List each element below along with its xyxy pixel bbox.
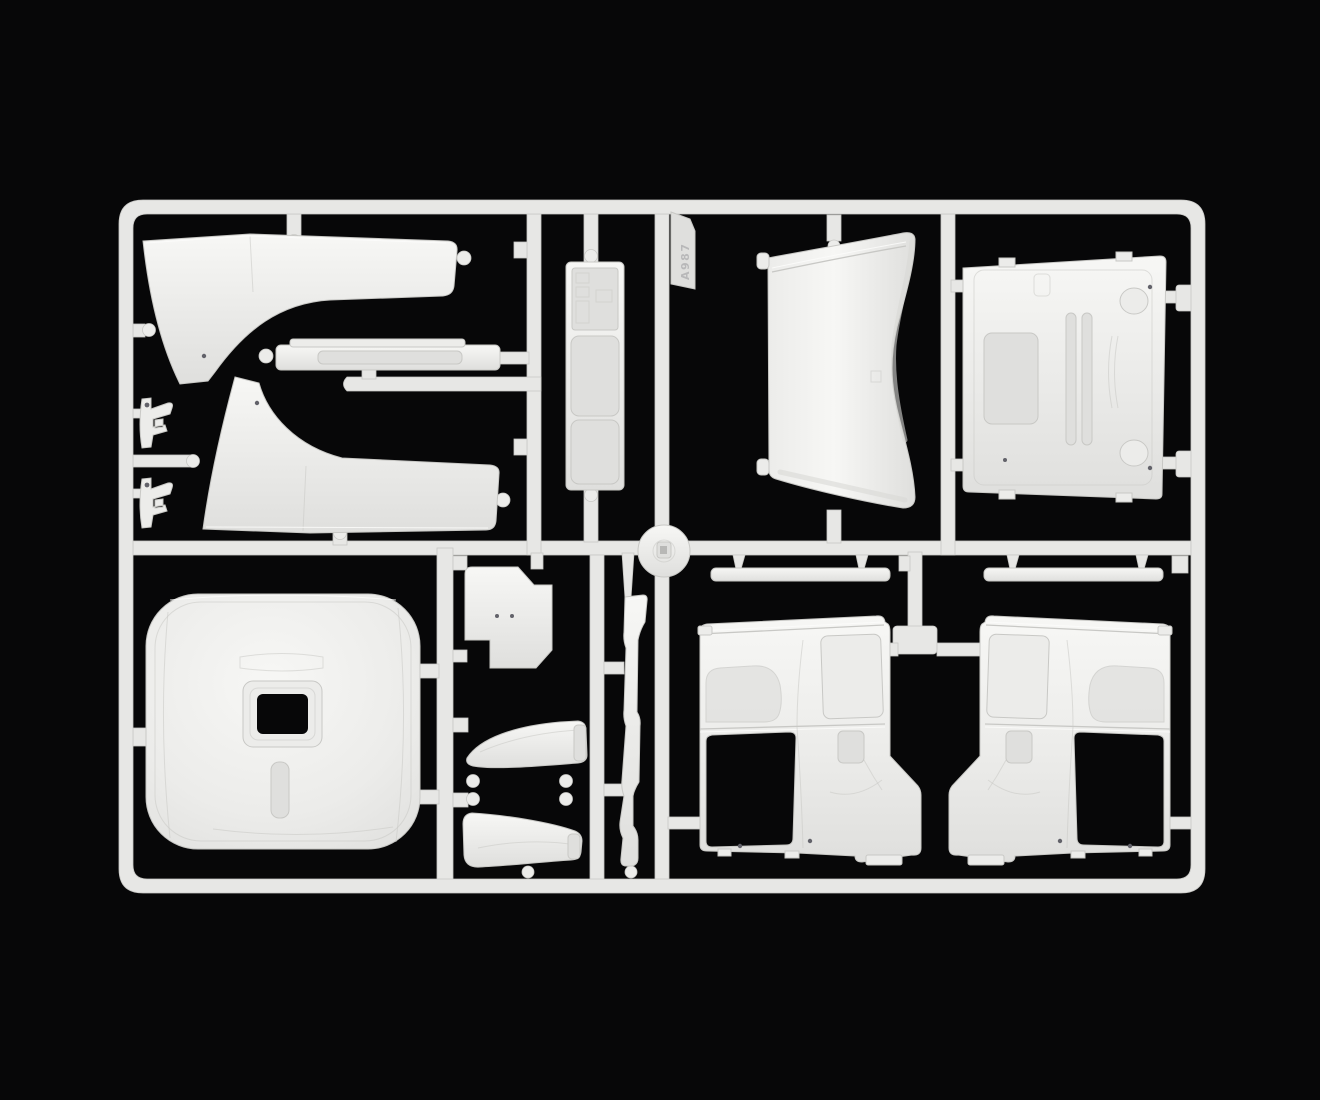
interior-panel	[566, 262, 624, 490]
runner-vertical-A	[437, 548, 453, 880]
tab-runner5-top	[899, 556, 910, 571]
bracket-hole	[145, 403, 150, 408]
gate-ball-scoop-3	[560, 775, 573, 788]
door-connector-arm-right	[937, 643, 982, 656]
backpanel-tab-4	[1116, 493, 1132, 502]
door-recess-rect	[821, 634, 884, 719]
sprue-photo: A987	[0, 0, 1320, 1100]
sunroof-opening	[257, 694, 308, 734]
backpanel-dome-2	[1120, 440, 1148, 466]
backpanel-dot-2	[1148, 466, 1152, 470]
backpanel-dome-1	[1120, 288, 1148, 314]
door-connector-block	[893, 626, 937, 654]
stub-left-mid	[133, 455, 190, 467]
sprue-tag: A987	[671, 212, 695, 289]
gate-ball-left-mid	[187, 455, 200, 468]
gate-ball-fender-arm	[457, 251, 471, 265]
tab-runnerA-top	[453, 556, 467, 570]
deflector-tab-bottom	[757, 459, 769, 475]
deflector-tab-top	[757, 253, 769, 269]
gate-ball-scoop-2	[467, 793, 480, 806]
backpanel-window-recess	[984, 333, 1038, 424]
fender-upper-pinmark	[202, 354, 206, 358]
backpanel-tab-2	[1116, 252, 1132, 261]
stub-door-left	[668, 817, 702, 829]
cab-back-panel	[963, 252, 1166, 502]
gate-ball-scoop-1	[467, 775, 480, 788]
backpanel-dot-3	[1003, 458, 1007, 462]
visor-recess	[318, 351, 462, 364]
door-dot-1	[808, 839, 812, 843]
gate-roof-deflector-bottom	[827, 510, 841, 543]
door-soft-recess	[706, 666, 781, 722]
hub-disc	[638, 525, 690, 577]
runner-vertical-2b	[590, 555, 604, 880]
gate-ball-scoop-bottom	[522, 866, 534, 878]
backpanel-tab-1	[999, 258, 1015, 267]
sprue-tag-text: A987	[679, 243, 692, 280]
interior-top-block	[572, 268, 618, 330]
gate-ball-sidetrim	[625, 866, 637, 878]
backpanel-rib-1	[1066, 313, 1076, 445]
tab-runnerA-2	[453, 793, 468, 807]
scoop-upper-endface	[574, 725, 586, 761]
backpanel-tab-3	[999, 490, 1015, 499]
gate-floorplate-left	[453, 650, 467, 662]
gate-ball-visor	[259, 349, 273, 363]
door-small-recess	[838, 731, 864, 763]
door-dot-2	[738, 844, 742, 848]
door-sill-tab-2	[785, 851, 799, 858]
interior-recess-2	[571, 420, 619, 484]
runner-vertical-4	[941, 214, 955, 555]
cab-roof-panel	[146, 594, 420, 849]
tab-runner1-top	[514, 242, 527, 258]
gate-ball-scoop-4	[560, 793, 573, 806]
backpanel-rib-2	[1082, 313, 1092, 445]
hub-slot	[660, 546, 667, 554]
door-sill-tab-1	[718, 849, 731, 856]
door-rail-cap	[698, 626, 712, 635]
tab-runnerA-1	[453, 718, 468, 732]
door-foot	[866, 855, 902, 865]
gate-floorplate-top	[531, 553, 543, 569]
bracket-hole	[145, 483, 150, 488]
roofpanel-slot	[271, 762, 289, 818]
tab-runner1-bottom	[514, 439, 527, 455]
gate-ball-left-fender	[143, 324, 156, 337]
gate-sidetrim-2	[604, 784, 624, 796]
photo-canvas: A987	[0, 0, 1320, 1100]
floorplate-dot-2	[510, 614, 514, 618]
scoop-lower-endface	[568, 834, 580, 859]
gate-ball-interior-top	[585, 250, 598, 263]
floorplate-dot-1	[495, 614, 499, 618]
backpanel-dot-1	[1148, 285, 1152, 289]
interior-recess-1	[571, 336, 619, 416]
roof-deflector	[757, 233, 915, 508]
fender-lower-pinmark	[255, 401, 259, 405]
gate-sidetrim-1	[604, 662, 624, 674]
gate-roof-deflector-top	[827, 215, 841, 241]
gate-fender-top	[287, 214, 301, 236]
tab-frame-right-3	[1172, 556, 1188, 573]
visor-raised-band	[290, 339, 465, 347]
